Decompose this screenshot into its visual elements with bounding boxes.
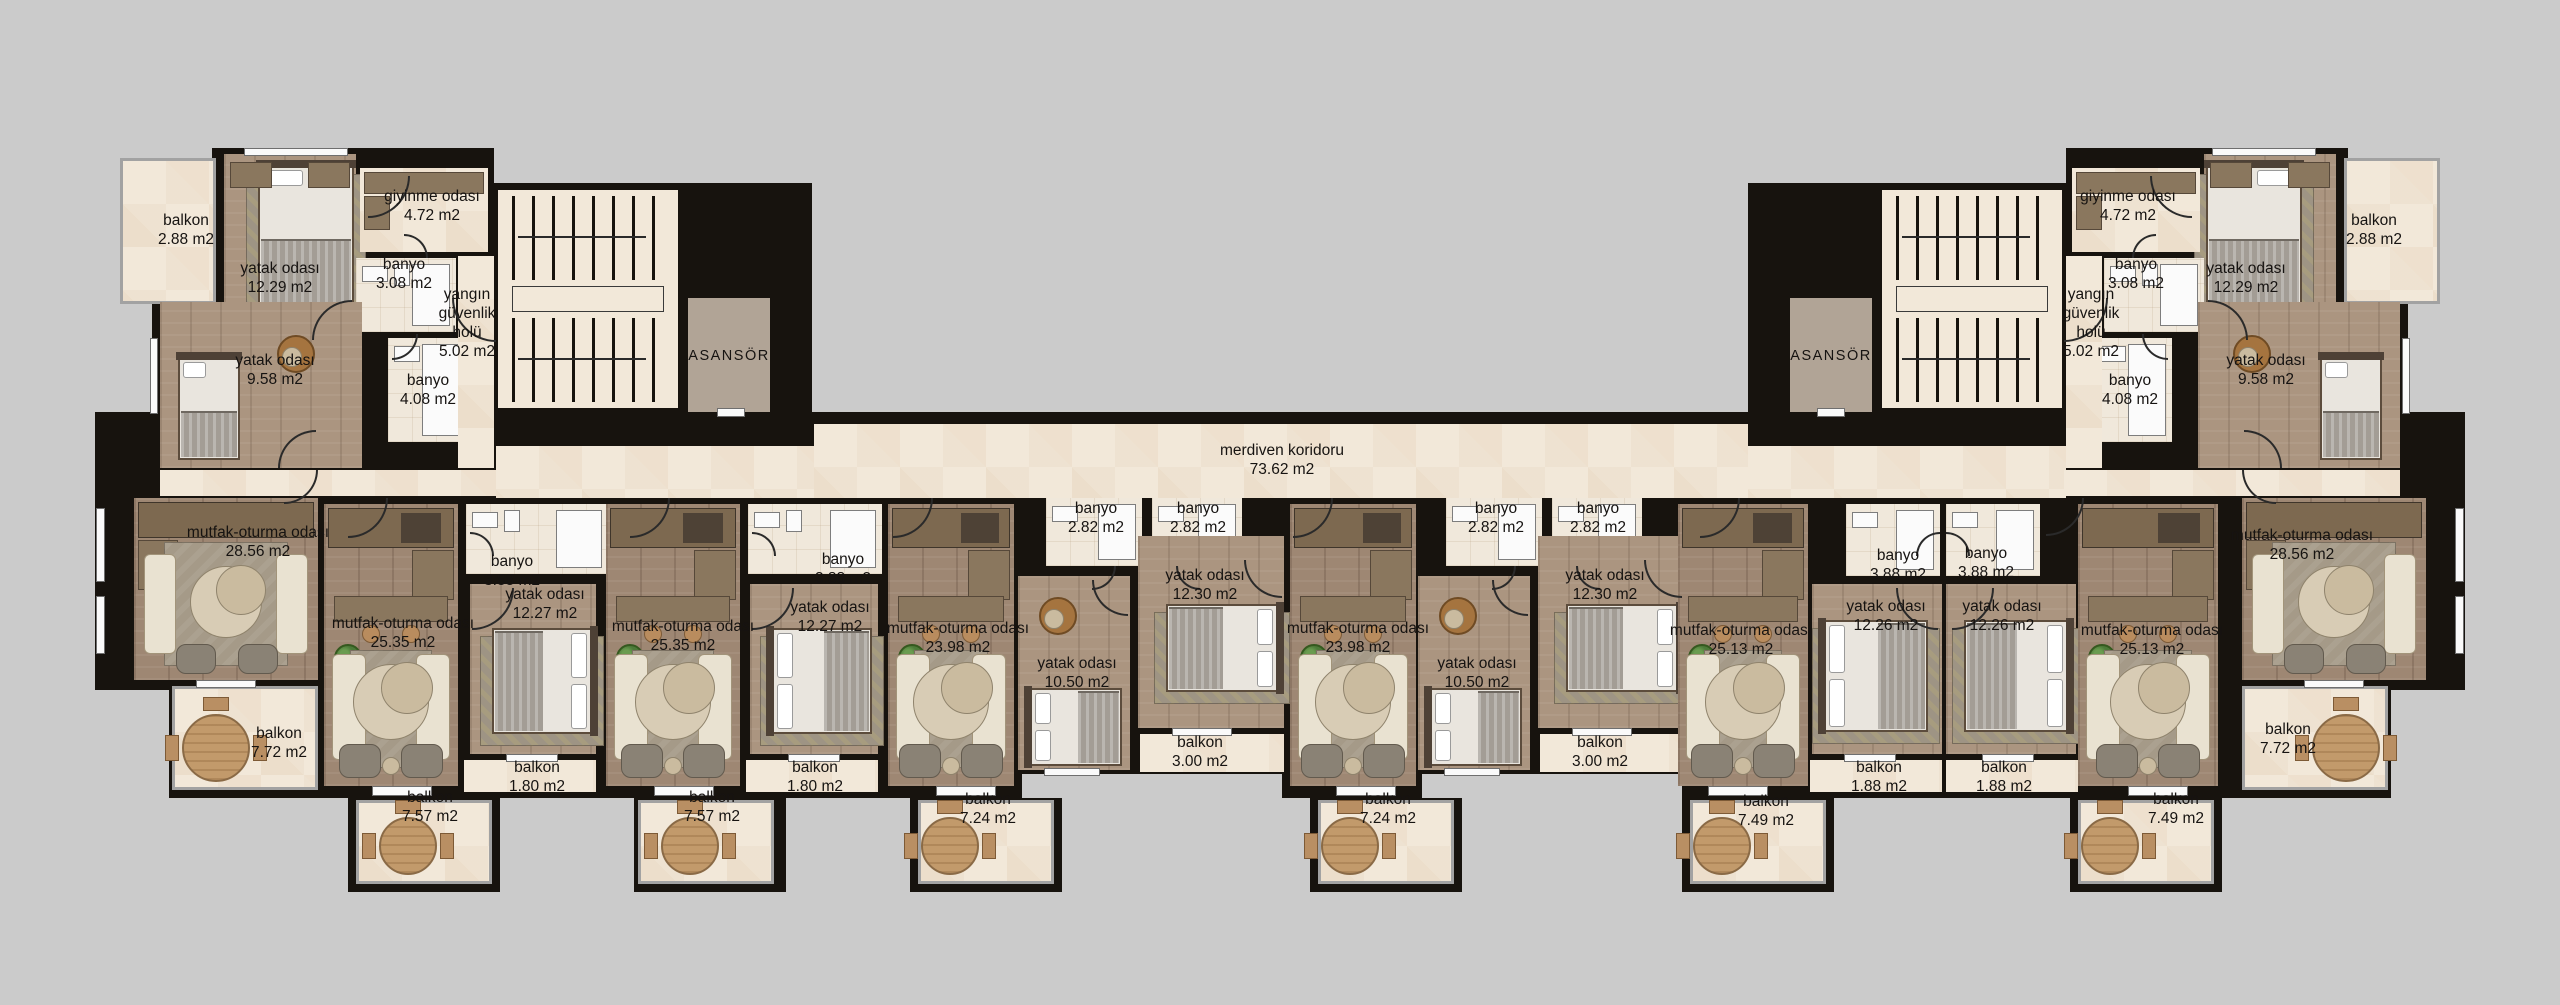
background-patch — [95, 690, 169, 798]
stair-flight — [512, 196, 664, 280]
blanket — [495, 631, 543, 731]
headboard — [2318, 352, 2384, 360]
dining-table — [898, 596, 1004, 622]
room-label-balkon-724-e: balkon 7.24 m2 — [1360, 791, 1416, 829]
stair-arrow — [1902, 358, 2030, 360]
room-label-banyo-282-d2: banyo 2.82 m2 — [1170, 500, 1226, 538]
room-label-mutfak-2856-l: mutfak-oturma odası 28.56 m2 — [187, 524, 329, 562]
stair-arrow — [518, 236, 646, 238]
blanket — [1967, 623, 2017, 729]
armchair — [1301, 744, 1343, 778]
dining-table — [1688, 596, 1798, 622]
room-hall-l — [160, 470, 496, 496]
room-label-yatak-958-l: yatak odası 9.58 m2 — [235, 352, 314, 390]
room-label-balkon-772-l: balkon 7.72 m2 — [251, 725, 307, 763]
label-corridor: merdiven koridoru 73.62 m2 — [1220, 442, 1344, 480]
window — [150, 338, 158, 414]
stair-landing — [1896, 286, 2048, 312]
room-label-mutfak-2856-r: mutfak-oturma odası 28.56 m2 — [2231, 527, 2373, 565]
room-label-balkon-188-d2: balkon 1.88 m2 — [1851, 759, 1907, 797]
headboard — [766, 626, 774, 736]
coffee-table — [2324, 565, 2374, 615]
window — [96, 508, 105, 582]
armchair — [961, 744, 1003, 778]
sink — [1852, 512, 1878, 528]
kitchen-cabinet — [694, 550, 736, 600]
room-label-mutfak-2398-d: mutfak-oturma odası 23.98 m2 — [887, 620, 1029, 658]
coffee-table — [216, 565, 266, 615]
sofa — [276, 554, 308, 654]
room-label-yatak-1227-b: yatak odası 12.27 m2 — [505, 586, 584, 624]
balcony-chair — [644, 833, 658, 859]
stair-flight — [1896, 196, 2048, 280]
kitchen-cabinet — [1762, 550, 1804, 600]
sink — [1952, 512, 1978, 528]
cooktop — [961, 513, 999, 543]
headboard — [1424, 686, 1432, 768]
kitchen-cabinet — [1370, 550, 1412, 600]
room-label-banyo-388-d2: banyo 3.88 m2 — [1870, 547, 1926, 585]
room-koridor-left — [496, 446, 814, 498]
room-label-yatak-1229-l: yatak odası 12.29 m2 — [240, 260, 319, 298]
coffee-table — [941, 662, 993, 714]
background-patch — [1022, 774, 1282, 798]
room-label-yatak-1230-e: yatak odası 12.30 m2 — [1565, 567, 1644, 605]
room-label-balkon-772-r: balkon 7.72 m2 — [2260, 721, 2316, 759]
room-label-banyo-388-c: banyo 3.88 m2 — [815, 551, 871, 589]
shower — [556, 510, 602, 568]
pillow — [571, 633, 587, 678]
room-label-banyo-408-r: banyo 4.08 m2 — [2102, 372, 2158, 410]
coffee-table — [2138, 662, 2190, 714]
room-label-asansor-l: ASANSÖR — [688, 348, 769, 366]
toilet — [504, 510, 520, 532]
balcony-table — [2312, 714, 2380, 782]
headboard — [1818, 618, 1826, 734]
pillow — [1435, 693, 1451, 724]
balcony-chair — [362, 833, 376, 859]
balcony-chair — [1676, 833, 1690, 859]
side-table — [1344, 757, 1362, 775]
dining-table — [2088, 596, 2208, 622]
wardrobe — [2210, 162, 2252, 188]
chair-cushion — [1044, 609, 1064, 629]
pillow — [777, 633, 793, 678]
window — [2455, 596, 2464, 654]
pillow — [777, 684, 793, 729]
room-label-balkon-300-d: balkon 3.00 m2 — [1172, 734, 1228, 772]
balcony-chair — [1304, 833, 1318, 859]
room-label-mutfak-2535-b: mutfak-oturma odası 25.35 m2 — [332, 615, 474, 653]
toilet — [786, 510, 802, 532]
headboard — [1024, 686, 1032, 768]
balcony-chair — [165, 735, 179, 761]
window — [1044, 768, 1100, 776]
side-table — [664, 757, 682, 775]
room-label-yangin-holu-l: yangın güvenlik holü 5.02 m2 — [439, 286, 496, 362]
room-label-banyo-308-l: banyo 3.08 m2 — [376, 256, 432, 294]
kitchen-cabinet — [412, 550, 454, 600]
room-label-balkon-180-c: balkon 1.80 m2 — [787, 759, 843, 797]
stair-arrow — [518, 358, 646, 360]
window — [2212, 148, 2316, 156]
pillow — [2325, 362, 2348, 378]
room-label-banyo-408-l: banyo 4.08 m2 — [400, 372, 456, 410]
blanket — [2323, 411, 2379, 457]
room-label-banyo-282-e2: banyo 2.82 m2 — [1570, 500, 1626, 538]
coffee-table — [1343, 662, 1395, 714]
background-patch — [1422, 774, 1682, 798]
pillow — [1257, 651, 1273, 687]
room-label-yangin-holu-r: yangın güvenlik holü 5.02 m2 — [2063, 286, 2120, 362]
coffee-table — [663, 662, 715, 714]
sink — [754, 512, 780, 528]
stair-flight — [1896, 318, 2048, 402]
window — [244, 148, 348, 156]
wardrobe — [308, 162, 350, 188]
window — [717, 408, 745, 417]
pillow — [2047, 679, 2063, 727]
cooktop — [401, 513, 441, 543]
pillow — [1257, 609, 1273, 645]
room-label-yatak-1050-e: yatak odası 10.50 m2 — [1437, 655, 1516, 693]
balcony-chair — [2064, 833, 2078, 859]
chair-cushion — [1444, 609, 1464, 629]
pillow — [2047, 625, 2063, 673]
balcony-chair — [440, 833, 454, 859]
room-label-mutfak-2513-d2: mutfak-oturma odası 25.13 m2 — [1670, 622, 1812, 660]
coffee-table — [381, 662, 433, 714]
armchair — [621, 744, 663, 778]
side-table — [382, 757, 400, 775]
headboard — [176, 352, 242, 360]
kitchen-cabinet — [968, 550, 1010, 600]
room-label-balkon-188-e2: balkon 1.88 m2 — [1976, 759, 2032, 797]
room-label-balkon-757-b: balkon 7.57 m2 — [402, 789, 458, 827]
shower — [2160, 264, 2198, 326]
wardrobe — [230, 162, 272, 188]
pillow — [1035, 693, 1051, 724]
armchair — [401, 744, 443, 778]
armchair — [1753, 744, 1795, 778]
window — [96, 596, 105, 654]
armchair — [339, 744, 381, 778]
armchair — [2284, 644, 2324, 674]
blanket — [1569, 607, 1623, 689]
room-label-mutfak-2398-e: mutfak-oturma odası 23.98 m2 — [1287, 620, 1429, 658]
room-label-balkon-288-r: balkon 2.88 m2 — [2346, 212, 2402, 250]
wardrobe — [2288, 162, 2330, 188]
sofa — [2384, 554, 2416, 654]
cooktop — [1753, 513, 1792, 543]
room-label-balkon-300-e: balkon 3.00 m2 — [1572, 734, 1628, 772]
blanket — [824, 631, 869, 731]
window — [2455, 508, 2464, 582]
room-label-mutfak-2513-e2: mutfak-oturma odası 25.13 m2 — [2081, 622, 2223, 660]
room-label-yatak-1050-d: yatak odası 10.50 m2 — [1037, 655, 1116, 693]
room-label-yatak-1227-c: yatak odası 12.27 m2 — [790, 599, 869, 637]
side-table — [942, 757, 960, 775]
window — [2402, 338, 2410, 414]
room-label-yatak-1230-d: yatak odası 12.30 m2 — [1165, 567, 1244, 605]
room-label-banyo-282-d1: banyo 2.82 m2 — [1068, 500, 1124, 538]
headboard — [1276, 602, 1284, 694]
balcony-chair — [904, 833, 918, 859]
room-label-balkon-757-c: balkon 7.57 m2 — [684, 789, 740, 827]
stair-landing — [512, 286, 664, 312]
window — [196, 680, 256, 688]
kitchen-cabinet — [2172, 550, 2214, 600]
sofa — [144, 554, 176, 654]
balcony-table — [2081, 817, 2139, 875]
balcony-chair — [2142, 833, 2156, 859]
pillow — [1829, 679, 1845, 727]
side-table — [2139, 757, 2157, 775]
stair-arrow — [1902, 236, 2030, 238]
room-label-balkon-288-l: balkon 2.88 m2 — [158, 212, 214, 250]
room-label-banyo-282-e1: banyo 2.82 m2 — [1468, 500, 1524, 538]
room-label-balkon-749-d2: balkon 7.49 m2 — [1738, 793, 1794, 831]
balcony-chair — [2383, 735, 2397, 761]
room-koridor-right — [1748, 446, 2066, 498]
room-label-yatak-1226-e2: yatak odası 12.26 m2 — [1962, 598, 2041, 636]
balcony-chair — [982, 833, 996, 859]
dining-table — [1300, 596, 1406, 622]
pillow — [571, 684, 587, 729]
armchair — [2346, 644, 2386, 674]
blanket — [1878, 623, 1925, 729]
coffee-table — [1733, 662, 1785, 714]
pillow — [183, 362, 206, 378]
room-label-asansor-r: ASANSÖR — [1790, 348, 1871, 366]
armchair — [176, 644, 216, 674]
room-label-balkon-724-d: balkon 7.24 m2 — [960, 791, 1016, 829]
balcony-chair — [2333, 697, 2359, 711]
blanket — [181, 411, 237, 457]
balcony-chair — [203, 697, 229, 711]
sofa — [2252, 554, 2284, 654]
room-label-yatak-958-r: yatak odası 9.58 m2 — [2226, 352, 2305, 390]
room-label-giyinme-472-r: giyinme odası 4.72 m2 — [2080, 188, 2176, 226]
balcony-table — [182, 714, 250, 782]
room-label-balkon-749-e2: balkon 7.49 m2 — [2148, 791, 2204, 829]
pillow — [1035, 730, 1051, 761]
cooktop — [2158, 513, 2200, 543]
background-patch — [2391, 690, 2465, 798]
headboard — [590, 626, 598, 736]
room-label-balkon-180-b: balkon 1.80 m2 — [509, 759, 565, 797]
room-hall-r — [2064, 470, 2400, 496]
armchair — [1691, 744, 1733, 778]
balcony-chair — [1709, 800, 1735, 814]
cooktop — [1363, 513, 1401, 543]
pillow — [1435, 730, 1451, 761]
window — [2304, 680, 2364, 688]
room-label-banyo-388-e2: banyo 3.88 m2 — [1958, 545, 2014, 583]
armchair — [683, 744, 725, 778]
room-label-yatak-1226-d2: yatak odası 12.26 m2 — [1846, 598, 1925, 636]
blanket — [1078, 691, 1119, 763]
room-label-yatak-1229-r: yatak odası 12.29 m2 — [2206, 260, 2285, 298]
side-table — [1734, 757, 1752, 775]
pillow — [1829, 625, 1845, 673]
cooktop — [683, 513, 723, 543]
floor-plan: balkon 2.88 m2yatak odası 12.29 m2giyinm… — [0, 0, 2560, 1005]
balcony-chair — [1382, 833, 1396, 859]
blanket — [1169, 607, 1223, 689]
room-label-giyinme-472-l: giyinme odası 4.72 m2 — [384, 188, 480, 226]
balcony-chair — [1754, 833, 1768, 859]
window — [1444, 768, 1500, 776]
headboard — [2066, 618, 2074, 734]
armchair — [899, 744, 941, 778]
armchair — [1363, 744, 1405, 778]
armchair — [2096, 744, 2138, 778]
window — [1817, 408, 1845, 417]
stair-flight — [512, 318, 664, 402]
armchair — [238, 644, 278, 674]
room-label-mutfak-2535-c: mutfak-oturma odası 25.35 m2 — [612, 618, 754, 656]
balcony-chair — [2097, 800, 2123, 814]
armchair — [2158, 744, 2200, 778]
balcony-chair — [722, 833, 736, 859]
blanket — [1478, 691, 1519, 763]
sink — [472, 512, 498, 528]
